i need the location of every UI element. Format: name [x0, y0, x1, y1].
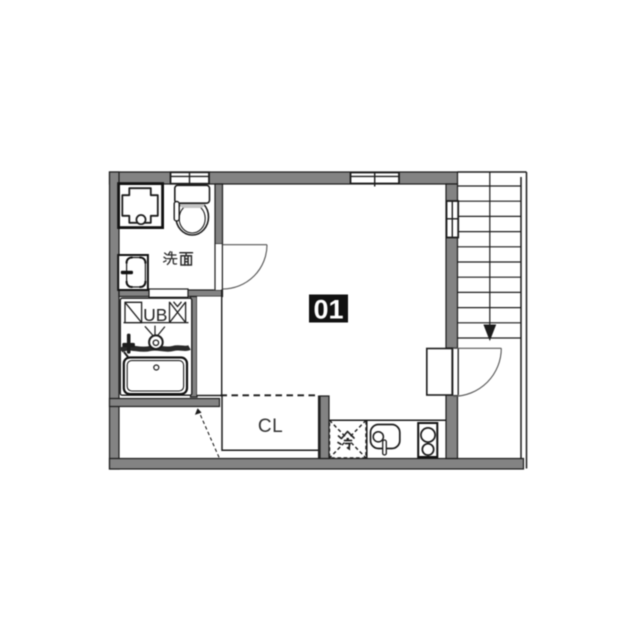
- svg-text:01: 01: [313, 295, 343, 325]
- svg-text:CL: CL: [258, 416, 283, 437]
- svg-text:UB: UB: [143, 305, 167, 325]
